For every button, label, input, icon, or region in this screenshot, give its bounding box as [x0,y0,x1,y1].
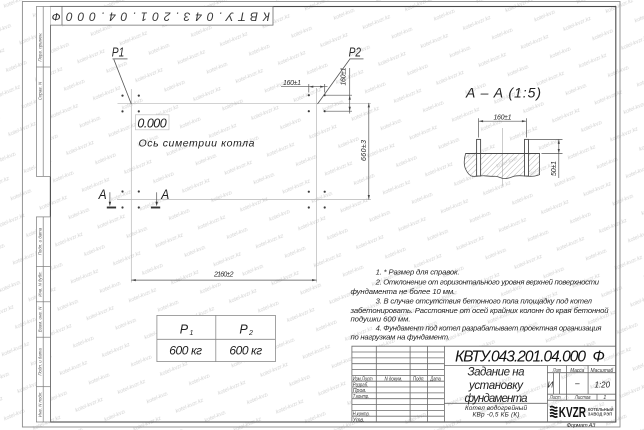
svg-text:2. Отклонение от горизонтально: 2. Отклонение от горизонтального уровня … [375,278,600,287]
svg-text:4. Фундамент под котел разраба: 4. Фундамент под котел разрабатывает про… [376,324,602,333]
svg-text:Утв.: Утв. [353,417,365,423]
svg-text:Подп. и дата: Подп. и дата [38,227,43,255]
svg-text:И: И [548,380,554,389]
svg-text:1:20: 1:20 [595,380,611,389]
svg-text:0.000: 0.000 [137,117,166,131]
svg-text:KVZR: KVZR [559,404,586,421]
svg-text:Ф: Ф [593,348,605,365]
svg-text:1: 1 [603,395,606,401]
svg-text:Формат А3: Формат А3 [567,423,597,429]
svg-text:Дата: Дата [430,377,441,383]
svg-text:P: P [180,322,189,336]
svg-text:Ось симетрии котла: Ось симетрии котла [139,137,255,149]
svg-text:160±1: 160±1 [283,80,301,87]
svg-text:–: – [574,379,580,388]
svg-text:Перв. примен.: Перв. примен. [38,32,43,61]
svg-text:660±3: 660±3 [361,140,368,161]
svg-text:A: A [160,187,169,202]
svg-text:установку: установку [468,380,524,392]
svg-text:Инв. N подл.: Инв. N подл. [38,391,43,417]
svg-text:Подп. и дата: Подп. и дата [38,348,43,376]
svg-text:600 кг: 600 кг [169,344,202,358]
svg-text:P2: P2 [349,46,362,60]
svg-text:фундамента: фундамента [465,393,528,405]
svg-text:50±1: 50±1 [551,161,558,176]
svg-text:160±1: 160±1 [341,67,348,85]
svg-text:Лист: Лист [549,395,561,401]
svg-text:600 кг: 600 кг [229,344,262,358]
svg-text:Взам. инв. N: Взам. инв. N [38,306,43,332]
svg-text:2: 2 [248,330,253,337]
svg-text:A – A (1:5): A – A (1:5) [465,85,541,101]
svg-text:Листов: Листов [574,395,590,401]
svg-text:Лит: Лит [552,368,561,374]
svg-text:подушки 600 мм.: подушки 600 мм. [351,314,411,323]
svg-text:Т.контр.: Т.контр. [353,394,370,400]
svg-text:Инв. N дубл.: Инв. N дубл. [38,271,43,296]
svg-text:Задание на: Задание на [468,367,525,379]
svg-text:3. В случае отсутствия бетонно: 3. В случае отсутствия бетонного пола пл… [376,297,593,306]
svg-text:фундамента не более 10 мм.: фундамента не более 10 мм. [351,287,456,296]
svg-text:A: A [98,187,107,202]
svg-text:N докум.: N докум. [385,377,403,383]
svg-text:P1: P1 [112,46,125,60]
svg-text:1. * Размер для справок.: 1. * Размер для справок. [376,267,460,276]
svg-text:Масштаб: Масштаб [591,368,615,374]
svg-text:КВр -0,5 КБ (К): КВр -0,5 КБ (К) [473,411,520,418]
svg-text:Подп.: Подп. [413,377,425,383]
svg-text:1: 1 [190,330,194,337]
svg-text:Справ. N: Справ. N [38,81,43,100]
svg-text:КВТУ.043.201.04.000: КВТУ.043.201.04.000 [455,348,586,365]
svg-text:ЗАВОД РЭП: ЗАВОД РЭП [588,412,612,417]
svg-text:Масса: Масса [570,368,584,374]
svg-text:160±1: 160±1 [494,115,512,122]
svg-text:P: P [239,322,248,336]
svg-text:2160±2: 2160±2 [213,272,234,279]
svg-text:КВТУ.043.201.04.000: КВТУ.043.201.04.000 [66,10,270,24]
svg-text:по нагрузкам на фундамент.: по нагрузкам на фундамент. [351,333,451,342]
svg-text:Ф: Ф [52,10,61,22]
